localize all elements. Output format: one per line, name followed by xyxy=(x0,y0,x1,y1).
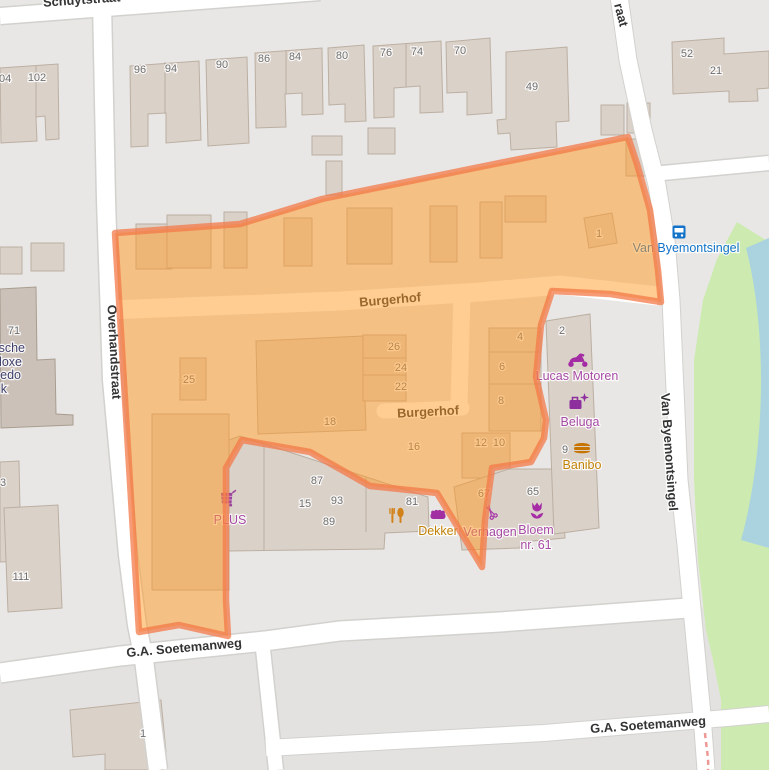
svg-text:52: 52 xyxy=(681,48,693,60)
svg-text:86: 86 xyxy=(258,53,270,65)
svg-text:80: 80 xyxy=(336,50,348,62)
svg-text:edo: edo xyxy=(0,368,21,382)
svg-text:104: 104 xyxy=(0,73,11,85)
svg-text:doxe: doxe xyxy=(0,355,22,369)
svg-text:49: 49 xyxy=(526,81,538,93)
svg-text:15: 15 xyxy=(299,498,311,510)
svg-text:k: k xyxy=(1,382,8,396)
svg-text:74: 74 xyxy=(411,46,423,58)
svg-text:21: 21 xyxy=(710,65,722,77)
svg-text:76: 76 xyxy=(380,47,392,59)
svg-text:84: 84 xyxy=(289,51,301,63)
svg-text:87: 87 xyxy=(311,475,323,487)
svg-text:2: 2 xyxy=(559,325,565,337)
svg-text:Beluga: Beluga xyxy=(561,415,600,429)
svg-text:nr. 61: nr. 61 xyxy=(520,538,551,552)
svg-text:90: 90 xyxy=(216,59,228,71)
svg-text:70: 70 xyxy=(454,45,466,57)
svg-text:81: 81 xyxy=(406,496,418,508)
svg-text:102: 102 xyxy=(28,72,46,84)
svg-text:89: 89 xyxy=(323,516,335,528)
svg-text:65: 65 xyxy=(527,486,539,498)
svg-text:Dekker: Dekker xyxy=(418,524,458,538)
svg-text:94: 94 xyxy=(165,63,177,75)
svg-text:71: 71 xyxy=(8,325,20,337)
svg-text:9: 9 xyxy=(562,444,568,456)
svg-text:1: 1 xyxy=(140,728,146,740)
svg-text:93: 93 xyxy=(331,495,343,507)
svg-text:96: 96 xyxy=(134,64,146,76)
svg-text:Banibo: Banibo xyxy=(563,458,602,472)
svg-text:3: 3 xyxy=(0,477,6,489)
svg-text:sche: sche xyxy=(0,341,25,355)
svg-text:Lucas Motoren: Lucas Motoren xyxy=(536,369,619,383)
svg-text:111: 111 xyxy=(13,571,30,583)
svg-text:Bloem: Bloem xyxy=(518,523,553,537)
